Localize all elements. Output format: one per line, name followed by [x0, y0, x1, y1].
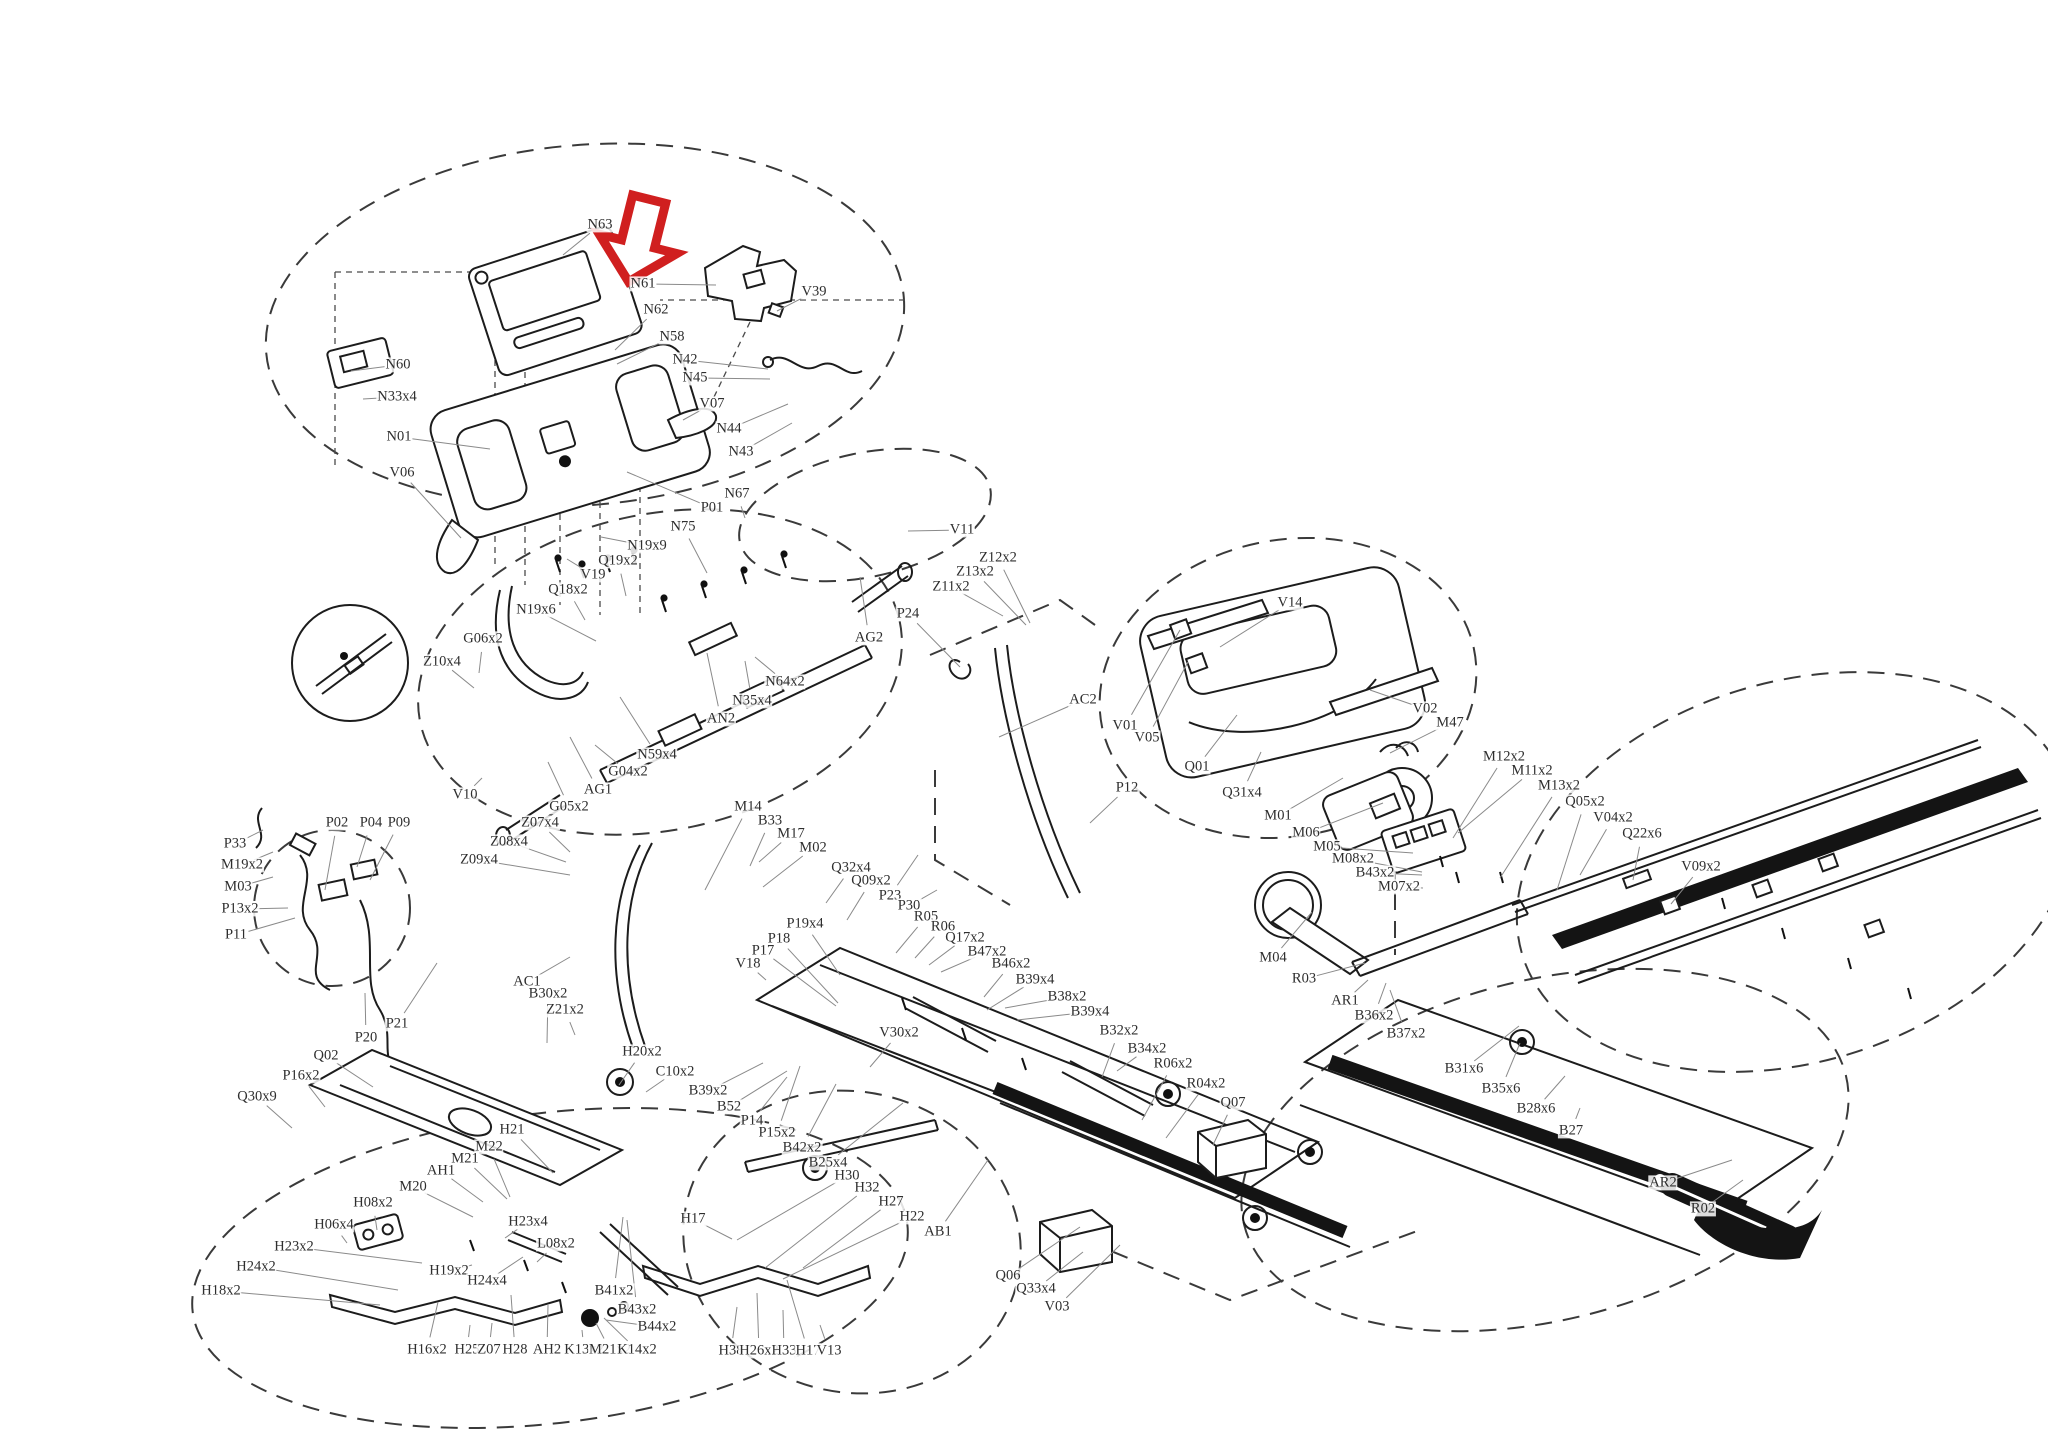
- part-label-b31x6: B31x6: [1444, 1061, 1485, 1076]
- part-label-p01: P01: [700, 500, 725, 515]
- part-label-h18x2: H18x2: [200, 1283, 241, 1298]
- part-label-p20: P20: [354, 1030, 379, 1045]
- part-label-r02: R02: [1690, 1201, 1716, 1216]
- part-label-p02: P02: [325, 815, 350, 830]
- part-label-n67: N67: [724, 486, 751, 501]
- part-label-p11: P11: [224, 927, 248, 942]
- part-label-an2: AN2: [706, 711, 736, 726]
- part-label-h17: H17: [680, 1211, 707, 1226]
- part-label-b39x2: B39x2: [688, 1083, 729, 1098]
- part-label-q09x2: Q09x2: [850, 873, 891, 888]
- part-label-ah2: AH2: [532, 1342, 562, 1357]
- part-label-g04x2: G04x2: [607, 764, 648, 779]
- part-label-ag2: AG2: [854, 630, 884, 645]
- part-label-v09x2: V09x2: [1680, 859, 1721, 874]
- part-label-b39x4: B39x4: [1015, 972, 1056, 987]
- part-label-q31x4: Q31x4: [1221, 785, 1262, 800]
- part-label-b27: B27: [1558, 1123, 1584, 1138]
- part-label-z11x2: Z11x2: [931, 579, 970, 594]
- part-label-q33x4: Q33x4: [1015, 1281, 1056, 1296]
- part-label-b32x2: B32x2: [1099, 1023, 1140, 1038]
- part-label-p12: P12: [1115, 780, 1140, 795]
- part-label-h08x2: H08x2: [352, 1195, 393, 1210]
- part-label-n58: N58: [659, 329, 686, 344]
- part-labels-layer: N63N61V39N62N58N42N45V07N44N43N60N33x4N0…: [0, 0, 2048, 1448]
- part-label-h20x2: H20x2: [621, 1044, 662, 1059]
- part-label-n43: N43: [728, 444, 755, 459]
- part-label-z09x4: Z09x4: [459, 852, 499, 867]
- part-label-h28: H28: [502, 1342, 529, 1357]
- part-label-p09: P09: [387, 815, 412, 830]
- part-label-r03: R03: [1291, 971, 1317, 986]
- part-label-ab1: AB1: [923, 1224, 952, 1239]
- part-label-n45: N45: [682, 370, 709, 385]
- part-label-n59x4: N59x4: [636, 747, 677, 762]
- part-label-v39: V39: [801, 284, 828, 299]
- part-label-h27: H27: [878, 1194, 905, 1209]
- part-label-g06x2: G06x2: [462, 631, 503, 646]
- part-label-h33: H33: [771, 1343, 798, 1358]
- part-label-b42x2: B42x2: [782, 1140, 823, 1155]
- part-label-v07: V07: [699, 396, 726, 411]
- part-label-b46x2: B46x2: [991, 956, 1032, 971]
- part-label-n01: N01: [386, 429, 413, 444]
- part-label-n33x4: N33x4: [376, 389, 417, 404]
- part-label-q22x6: Q22x6: [1621, 826, 1662, 841]
- part-label-q02: Q02: [313, 1048, 340, 1063]
- parts-diagram-canvas: N63N61V39N62N58N42N45V07N44N43N60N33x4N0…: [0, 0, 2048, 1448]
- part-label-v04x2: V04x2: [1592, 810, 1633, 825]
- part-label-ag1: AG1: [583, 782, 613, 797]
- part-label-b36x2: B36x2: [1354, 1008, 1395, 1023]
- part-label-p33: P33: [223, 836, 248, 851]
- part-label-ac2: AC2: [1068, 692, 1097, 707]
- part-label-h19x2: H19x2: [428, 1263, 469, 1278]
- part-label-m20: M20: [398, 1179, 427, 1194]
- part-label-v10: V10: [452, 787, 479, 802]
- part-label-m02: M02: [798, 840, 827, 855]
- part-label-v05: V05: [1134, 730, 1161, 745]
- part-label-z13x2: Z13x2: [955, 564, 995, 579]
- part-label-m19x2: M19x2: [220, 857, 264, 872]
- part-label-m07x2: M07x2: [1377, 879, 1421, 894]
- part-label-b30x2: B30x2: [528, 986, 569, 1001]
- part-label-b43x2: B43x2: [617, 1302, 658, 1317]
- part-label-p24: P24: [896, 606, 921, 621]
- part-label-r04x2: R04x2: [1186, 1076, 1227, 1091]
- part-label-h23x2: H23x2: [273, 1239, 314, 1254]
- part-label-h24x2: H24x2: [235, 1259, 276, 1274]
- part-label-h32: H32: [854, 1180, 881, 1195]
- part-label-l08x2: L08x2: [536, 1236, 576, 1251]
- part-label-b35x6: B35x6: [1481, 1081, 1522, 1096]
- part-label-m11x2: M11x2: [1510, 763, 1553, 778]
- part-label-k14x2: K14x2: [616, 1342, 657, 1357]
- part-label-ah1: AH1: [426, 1163, 456, 1178]
- part-label-p15x2: P15x2: [757, 1125, 796, 1140]
- part-label-h24x4: H24x4: [466, 1273, 507, 1288]
- part-label-p19x4: P19x4: [785, 916, 824, 931]
- part-label-p16x2: P16x2: [281, 1068, 320, 1083]
- part-label-b41x2: B41x2: [594, 1283, 635, 1298]
- part-label-ar2: AR2: [1648, 1175, 1677, 1190]
- part-label-p21: P21: [385, 1016, 410, 1031]
- part-label-n19x9: N19x9: [626, 538, 667, 553]
- part-label-v13: V13: [816, 1343, 843, 1358]
- part-label-h21: H21: [499, 1122, 526, 1137]
- part-label-b38x2: B38x2: [1047, 989, 1088, 1004]
- part-label-m47: M47: [1435, 715, 1464, 730]
- part-label-n75: N75: [670, 519, 697, 534]
- part-label-b28x6: B28x6: [1516, 1101, 1557, 1116]
- part-label-n63: N63: [587, 217, 614, 232]
- part-label-m04: M04: [1258, 950, 1287, 965]
- part-label-h16x2: H16x2: [406, 1342, 447, 1357]
- part-label-b44x2: B44x2: [637, 1319, 678, 1334]
- part-label-v30x2: V30x2: [878, 1025, 919, 1040]
- part-label-n64x2: N64x2: [764, 674, 805, 689]
- part-label-z07: Z07: [476, 1342, 501, 1357]
- part-label-v03: V03: [1044, 1299, 1071, 1314]
- part-label-b39x4: B39x4: [1070, 1004, 1111, 1019]
- part-label-q07: Q07: [1220, 1095, 1247, 1110]
- part-label-z08x4: Z08x4: [489, 834, 529, 849]
- part-label-m13x2: M13x2: [1537, 778, 1581, 793]
- part-label-n60: N60: [385, 357, 412, 372]
- part-label-z21x2: Z21x2: [545, 1002, 585, 1017]
- part-label-n44: N44: [716, 421, 743, 436]
- part-label-g05x2: G05x2: [548, 799, 589, 814]
- part-label-q18x2: Q18x2: [547, 582, 588, 597]
- part-label-n42: N42: [672, 352, 699, 367]
- part-label-b34x2: B34x2: [1127, 1041, 1168, 1056]
- part-label-q30x9: Q30x9: [236, 1089, 277, 1104]
- part-label-p13x2: P13x2: [220, 901, 259, 916]
- part-label-v14: V14: [1277, 595, 1304, 610]
- part-label-v02: V02: [1412, 701, 1439, 716]
- part-label-h06x4: H06x4: [313, 1217, 354, 1232]
- part-label-n19x6: N19x6: [515, 602, 556, 617]
- part-label-v18: V18: [735, 956, 762, 971]
- part-label-b37x2: B37x2: [1386, 1026, 1427, 1041]
- part-label-m03: M03: [223, 879, 252, 894]
- part-label-z07x4: Z07x4: [520, 815, 560, 830]
- part-label-v06: V06: [389, 465, 416, 480]
- part-label-n62: N62: [643, 302, 670, 317]
- part-label-m01: M01: [1263, 808, 1292, 823]
- part-label-h23x4: H23x4: [507, 1214, 548, 1229]
- part-label-p04: P04: [359, 815, 384, 830]
- part-label-v11: V11: [949, 522, 975, 537]
- part-label-q01: Q01: [1184, 759, 1211, 774]
- part-label-c10x2: C10x2: [655, 1064, 696, 1079]
- part-label-ar1: AR1: [1330, 993, 1359, 1008]
- part-label-q05x2: Q05x2: [1564, 794, 1605, 809]
- part-label-z10x4: Z10x4: [422, 654, 462, 669]
- part-label-b52: B52: [716, 1099, 742, 1114]
- part-label-r06x2: R06x2: [1153, 1056, 1194, 1071]
- part-label-h22: H22: [899, 1209, 926, 1224]
- part-label-n61: N61: [630, 276, 657, 291]
- part-label-n35x4: N35x4: [731, 693, 772, 708]
- part-label-v19: V19: [580, 567, 607, 582]
